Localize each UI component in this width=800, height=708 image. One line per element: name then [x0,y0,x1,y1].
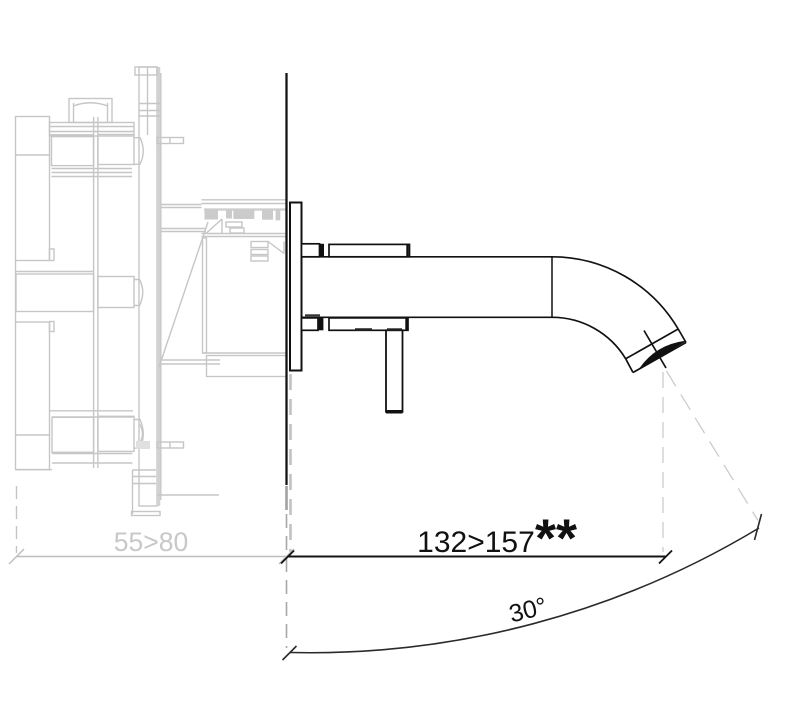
svg-text:**: ** [535,509,577,569]
svg-text:132>157: 132>157 [417,526,535,559]
svg-text:55>80: 55>80 [114,527,188,557]
